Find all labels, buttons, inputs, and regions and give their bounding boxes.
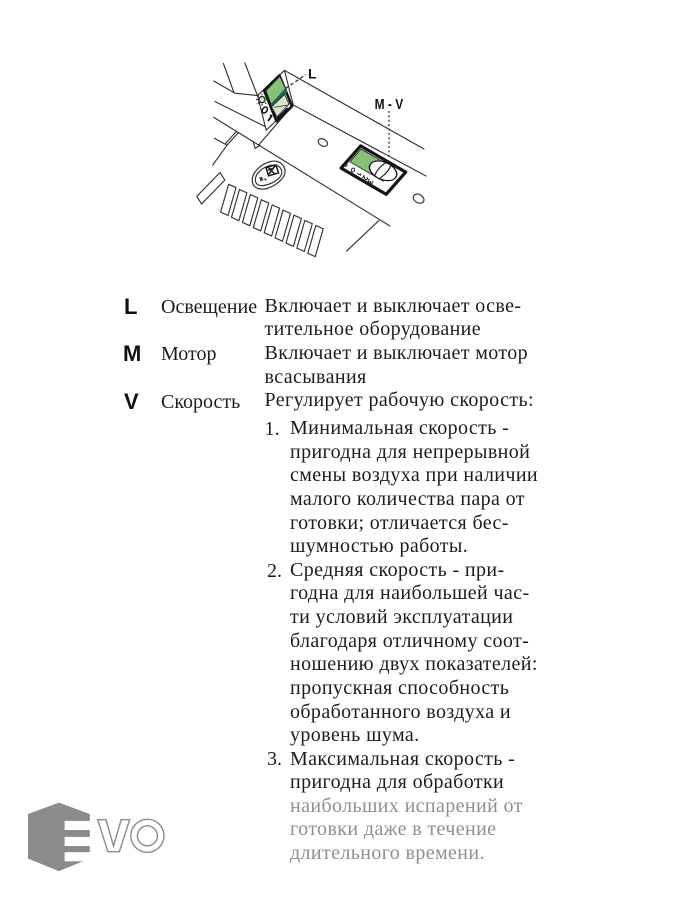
- svg-text:L: L: [308, 66, 317, 82]
- svg-text:M - V: M - V: [375, 97, 404, 113]
